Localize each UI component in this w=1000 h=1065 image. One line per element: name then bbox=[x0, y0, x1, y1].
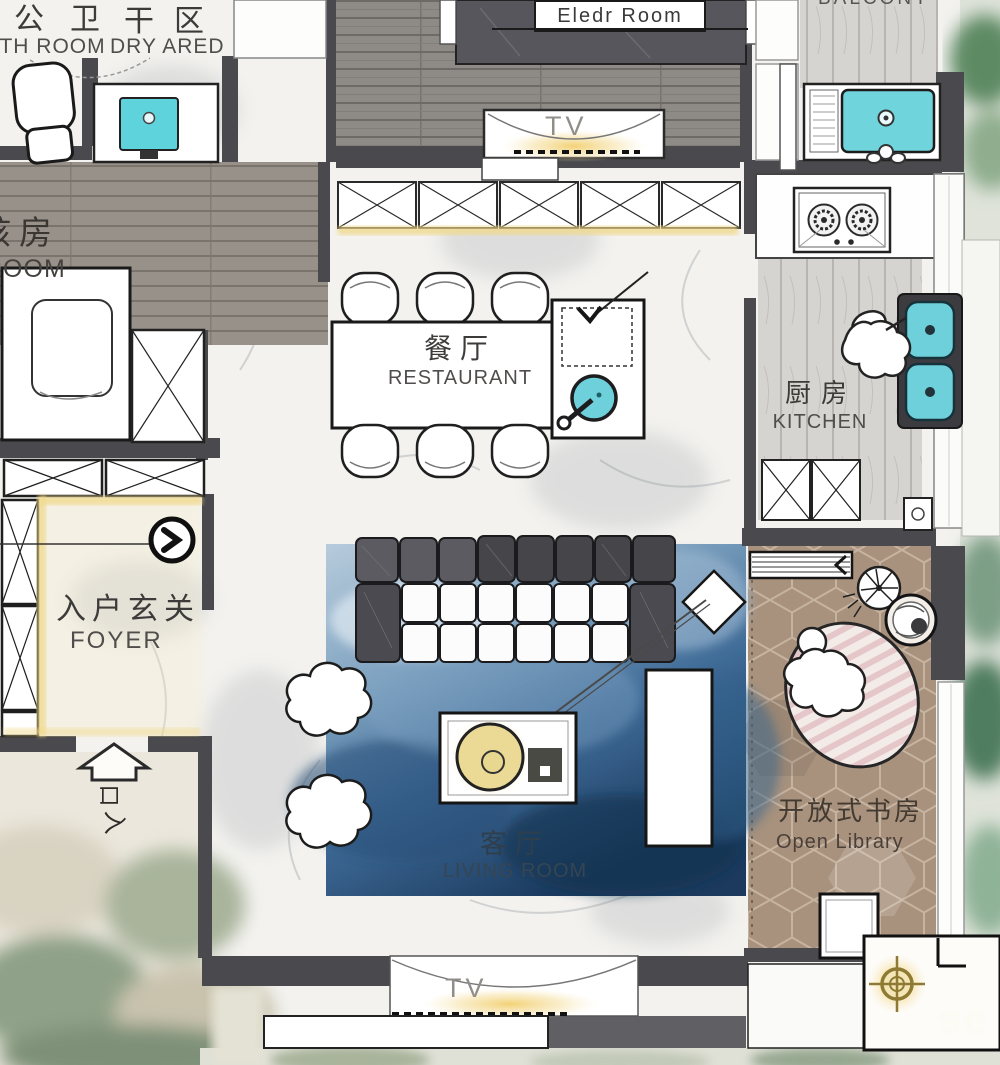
bath-room-label-zh: 公卫 bbox=[14, 4, 126, 36]
living-label-en: LIVING ROOM bbox=[430, 861, 600, 882]
wardrobe-row bbox=[338, 182, 740, 228]
foyer-underglow-b bbox=[4, 728, 200, 736]
ceiling-light-marker bbox=[867, 954, 927, 1014]
bath-room-label-en: ATH ROOM bbox=[0, 36, 106, 58]
sofa bbox=[356, 536, 675, 662]
entry-label-char-bottom: 入 bbox=[101, 811, 126, 835]
floor-plan: 公卫 ATH ROOM 干区 DRY ARED 孩房 ROOM Eledr Ro… bbox=[0, 0, 1000, 1065]
speaker-icon bbox=[528, 748, 562, 782]
dining-chairs-top bbox=[342, 273, 548, 325]
foyer-underglow-v bbox=[37, 496, 46, 736]
kids-bed bbox=[2, 268, 130, 440]
tv-label-living: TV bbox=[445, 974, 488, 1002]
kitchen-label-en: KITCHEN bbox=[760, 412, 880, 433]
dry-area-label-zh: 干区 bbox=[124, 6, 224, 38]
coffee-table bbox=[440, 713, 576, 803]
bookshelf bbox=[750, 552, 852, 578]
foyer-label-zh: 入户玄关 bbox=[56, 594, 200, 626]
floor-plan-drawing bbox=[0, 0, 1000, 1065]
watermark: se bbox=[938, 995, 989, 1043]
kids-room-label-zh: 孩房 bbox=[0, 216, 60, 251]
kids-room-label-en: ROOM bbox=[0, 256, 66, 282]
entry-label-char-top: 口 bbox=[97, 785, 120, 807]
dining-label-zh: 餐厅 bbox=[360, 334, 560, 363]
balcony-label: BALCONY bbox=[818, 0, 930, 9]
foyer-label-en: FOYER bbox=[70, 628, 163, 653]
kids-cabinet bbox=[132, 330, 204, 442]
foyer-underglow-h bbox=[40, 496, 202, 505]
library-label-en: Open Library bbox=[776, 832, 904, 853]
tv-wall-living bbox=[390, 956, 638, 1020]
library-label-zh: 开放式书房 bbox=[778, 798, 923, 825]
wardrobe-underglow bbox=[338, 226, 738, 235]
library-window bbox=[938, 682, 964, 950]
washing-machine-icon bbox=[94, 84, 218, 162]
tv-label-master: TV bbox=[545, 112, 588, 140]
dining-label-en: RESTAURANT bbox=[360, 368, 560, 389]
tv-cabinet bbox=[646, 670, 712, 846]
dining-chairs-bottom bbox=[342, 425, 548, 477]
rattan-chair bbox=[886, 595, 936, 645]
dry-area-label-en: DRY ARED bbox=[110, 36, 225, 58]
kitchen-label-zh: 厨房 bbox=[766, 380, 876, 407]
top-window bbox=[234, 0, 326, 58]
kitchen-sink-icon bbox=[898, 294, 962, 428]
elder-room-label-underline bbox=[492, 28, 748, 30]
kitchen-stove-icon bbox=[794, 188, 890, 252]
balcony-top-floor bbox=[800, 0, 938, 88]
window-sill bbox=[264, 1016, 548, 1048]
living-label-zh: 客厅 bbox=[455, 830, 575, 858]
